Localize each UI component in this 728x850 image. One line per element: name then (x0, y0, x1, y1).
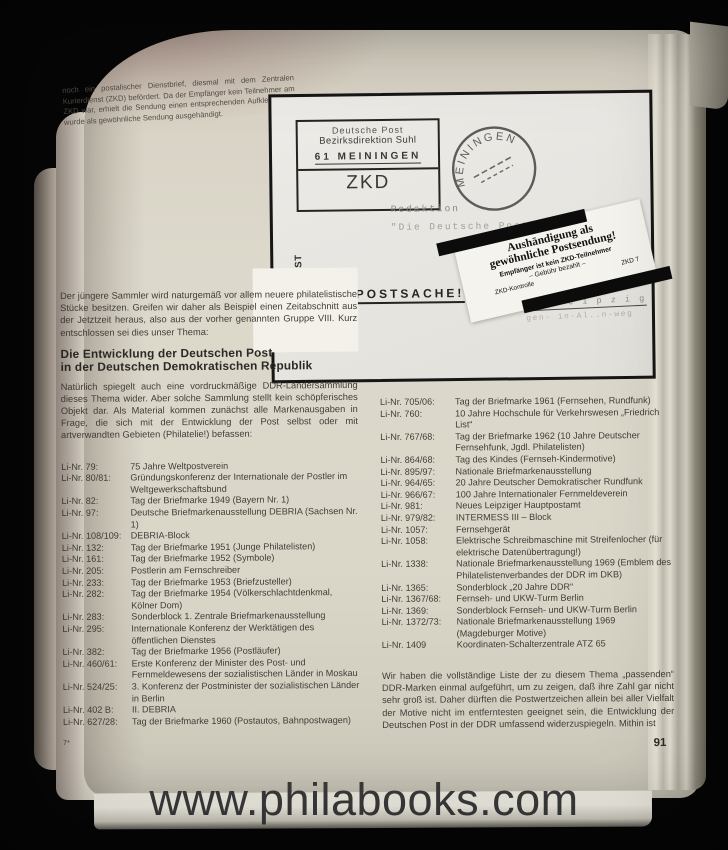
list-item-text: Elektrische Schreibmaschine mit Streifen… (456, 534, 673, 559)
cachet-line: 61 MEININGEN (315, 150, 422, 164)
list-item-number: Li-Nr. 283: (62, 612, 131, 624)
typed-line: gen- in-Al..n-weg (526, 309, 647, 324)
address-line: Redaktion (391, 202, 537, 215)
list-item-number: Li-Nr. 295: (62, 623, 131, 647)
list-item-number: Li-Nr. 80/81: (61, 473, 130, 497)
zkd-cachet-box: Deutsche Post Bezirksdirektion Suhl 61 M… (296, 118, 441, 212)
list-item-number: Li-Nr. 1409 (382, 640, 457, 652)
list-item-number: Li-Nr. 760: (380, 408, 455, 432)
list-item-number: Li-Nr. 1338: (381, 559, 456, 583)
list-item-number: Li-Nr. 964/65: (381, 478, 456, 490)
closing-paragraph: Wir haben die vollständige Liste der zu … (382, 668, 674, 731)
list-item: Li-Nr. 627/28:Tag der Briefmarke 1960 (P… (63, 715, 360, 729)
list-item: Li-Nr. 524/25:3. Konferenz der Postminis… (63, 680, 360, 705)
list-item: Li-Nr. 97:Deutsche Briefmarkenausstellun… (62, 506, 359, 531)
list-item-number: Li-Nr. 979/82: (381, 512, 456, 524)
list-item-number: Li-Nr. 705/06: (380, 396, 455, 408)
list-item-number: Li-Nr. 627/28: (63, 716, 132, 728)
list-item-number: Li-Nr. 524/25: (63, 681, 132, 705)
list-item-text: Nationale Briefmarkenausstellung 1969 (M… (457, 615, 674, 640)
list-item-text: 10 Jahre Hochschule für Verkehrswesen „F… (455, 407, 672, 432)
list-item-number: Li-Nr. 205: (62, 565, 131, 577)
book-photo: noch ein postalischer Dienstbrief, diesm… (0, 0, 728, 850)
list-item: Li-Nr. 80/81:Gründungskonferenz der Inte… (61, 471, 358, 496)
list-item-text: Internationale Konferenz der Werktätigen… (131, 622, 359, 647)
list-item-number: Li-Nr. 864/68: (380, 454, 455, 466)
postsache-imprint: POSTSACHE! (356, 286, 465, 304)
list-item-number: Li-Nr. 767/68: (380, 431, 455, 455)
heading-line-2: in der Deutschen Demokratischen Republik (60, 359, 357, 374)
list-item: Li-Nr. 1338:Nationale Briefmarkenausstel… (381, 557, 673, 582)
list-item-number: Li-Nr. 82: (61, 496, 130, 508)
cachet-zkd: ZKD (298, 167, 438, 197)
list-item-number: Li-Nr. 966/67: (381, 489, 456, 501)
list-item-text: Nationale Briefmarkenausstellung 1969 (E… (456, 557, 673, 582)
list-item: Li-Nr. 760:10 Jahre Hochschule für Verke… (380, 407, 672, 432)
list-item-number: Li-Nr. 79: (61, 461, 130, 473)
left-column: Der jüngere Sammler wird naturgemäß vor … (60, 288, 360, 747)
intro-paragraph: Der jüngere Sammler wird naturgemäß vor … (60, 288, 357, 339)
list-item: Li-Nr. 282:Tag der Briefmarke 1954 (Völk… (62, 587, 359, 612)
list-item-number: Li-Nr. 1369: (381, 605, 456, 617)
list-item-number: Li-Nr. 1367/68: (381, 594, 456, 606)
list-item-text: Erste Konferenz der Minister des Post- u… (132, 657, 360, 682)
page-number: 91 (382, 737, 674, 751)
list-item-text: Gründungskonferenz der Internationale de… (130, 471, 358, 496)
list-item: Li-Nr. 1058:Elektrische Schreibmaschine … (381, 534, 673, 559)
list-item-text: Tag der Briefmarke 1960 (Postautos, Bahn… (132, 715, 360, 728)
list-item-text: Deutsche Briefmarkenausstellung DEBRIA (… (131, 506, 359, 531)
right-column: Li-Nr. 705/06:Tag der Briefmarke 1961 (F… (380, 395, 674, 751)
lead-paragraph: Natürlich spiegelt auch eine vordruckmäß… (61, 379, 358, 442)
list-item-number: Li-Nr. 161: (62, 554, 131, 566)
list-item-number: Li-Nr. 1365: (381, 582, 456, 594)
list-item-number: Li-Nr. 233: (62, 577, 131, 589)
list-item-number: Li-Nr. 895/97: (380, 466, 455, 478)
page-stack-corner (690, 22, 728, 111)
stamp-list-right: Li-Nr. 705/06:Tag der Briefmarke 1961 (F… (380, 395, 674, 652)
list-item-number: Li-Nr. 382: (62, 647, 131, 659)
list-item-number: Li-Nr. 1058: (381, 536, 456, 560)
list-item: Li-Nr. 767/68:Tag der Briefmarke 1962 (1… (380, 430, 672, 455)
section-heading: Die Entwicklung der Deutschen Post in de… (60, 346, 357, 375)
list-item-number: Li-Nr. 402 B: (63, 705, 132, 717)
list-item: Li-Nr. 295:Internationale Konferenz der … (62, 622, 359, 647)
list-item-number: Li-Nr. 981: (381, 501, 456, 513)
list-item-text: Koordinaten-Schalterzentrale ATZ 65 (457, 638, 674, 651)
list-item: Li-Nr. 1409Koordinaten-Schalterzentrale … (382, 638, 674, 652)
list-item-number: Li-Nr. 1372/73: (382, 617, 457, 641)
list-item-number: Li-Nr. 282: (62, 589, 131, 613)
philabooks-watermark: www.philabooks.com (149, 774, 578, 826)
list-item-text: Tag der Briefmarke 1962 (10 Jahre Deutsc… (455, 430, 672, 455)
list-item-number: Li-Nr. 132: (62, 542, 131, 554)
list-item-number: Li-Nr. 97: (62, 508, 131, 532)
list-item-number: Li-Nr. 108/109: (62, 531, 131, 543)
list-item-number: Li-Nr. 1057: (381, 524, 456, 536)
stamp-list-left: Li-Nr. 79:75 Jahre WeltpostvereinLi-Nr. … (61, 460, 360, 729)
list-item-text: Tag der Briefmarke 1954 (Völkerschlachtd… (131, 587, 359, 612)
list-item-number: Li-Nr. 460/61: (63, 658, 132, 682)
list-item-text: 3. Konferenz der Postminister der sozial… (132, 680, 360, 705)
list-item: Li-Nr. 460/61:Erste Konferenz der Minist… (63, 657, 360, 682)
list-item: Li-Nr. 1372/73:Nationale Briefmarkenauss… (382, 615, 674, 640)
